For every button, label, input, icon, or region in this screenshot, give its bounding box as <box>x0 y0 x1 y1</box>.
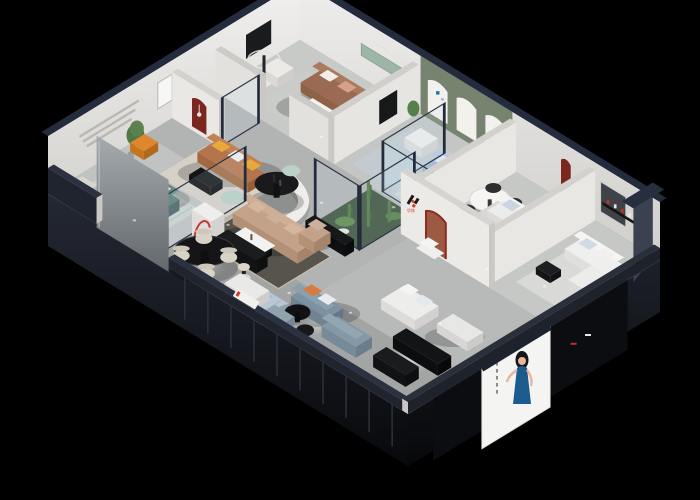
atrium-glass-side-post <box>359 185 361 250</box>
downlight-glint <box>349 312 353 314</box>
downlight-glint <box>320 136 324 138</box>
se-panel-logo-mark <box>585 334 591 336</box>
downlight-glint <box>543 285 547 287</box>
dining-chair <box>485 183 501 193</box>
lounge-glass-side-post <box>443 103 445 154</box>
poster-vertical-text-mark <box>496 383 498 387</box>
table-decor-bottle <box>279 180 281 186</box>
poster-vertical-text-mark <box>496 369 498 373</box>
downlight-glint <box>226 224 230 226</box>
dining-table-pedestal <box>201 251 209 264</box>
se-panel-logo-mark <box>571 343 577 345</box>
showroom-scene: ······M华饰华饰 <box>0 0 700 500</box>
cream-dining-chair <box>195 233 212 244</box>
mint-stool <box>282 165 300 176</box>
showroom-isometric-render: ······M华饰华饰 <box>0 0 700 500</box>
bar-stool-seat <box>238 263 250 271</box>
downlight-glint <box>287 292 291 294</box>
teal-room-glass-post <box>244 147 246 202</box>
brand-logo-caption: 华饰 <box>407 207 415 213</box>
cream-dining-chair <box>220 252 237 263</box>
shelf-display-item <box>628 213 631 217</box>
arch-badge-mark <box>436 91 439 94</box>
cream-chair-back <box>198 264 215 270</box>
downlight-glint <box>392 206 396 208</box>
downlight-glint <box>485 268 489 270</box>
shelf-display-item <box>607 200 610 204</box>
downlight-glint <box>133 219 137 221</box>
atrium-glass-front-post <box>314 159 316 224</box>
partition-a-b-end <box>328 113 334 165</box>
poster-vertical-text-mark <box>496 376 498 380</box>
cream-chair-back <box>173 245 190 251</box>
teal-room-plant <box>130 121 144 137</box>
pendant-lamp <box>197 112 201 116</box>
reception-table-base <box>295 312 300 322</box>
poster-vertical-text-mark <box>496 390 498 394</box>
room-a-front-wall-left-end <box>260 74 266 120</box>
downlight-glint <box>439 323 443 325</box>
shelf-display-item <box>614 204 617 208</box>
cream-chair-back <box>195 229 212 235</box>
caramel-room-glass-post <box>257 75 259 124</box>
h-brand-wall-end <box>489 222 495 288</box>
downlight-glint <box>320 202 324 204</box>
cream-chair-back <box>220 247 237 253</box>
shelf-display-item <box>621 209 624 213</box>
poster-woman-face <box>518 357 526 365</box>
table-decor-bottle <box>273 174 275 182</box>
front-left-navy-wall-end <box>97 194 103 224</box>
coffee-table-decor <box>250 234 252 240</box>
room-b-plant <box>407 101 419 117</box>
oval-table-base <box>274 184 280 198</box>
